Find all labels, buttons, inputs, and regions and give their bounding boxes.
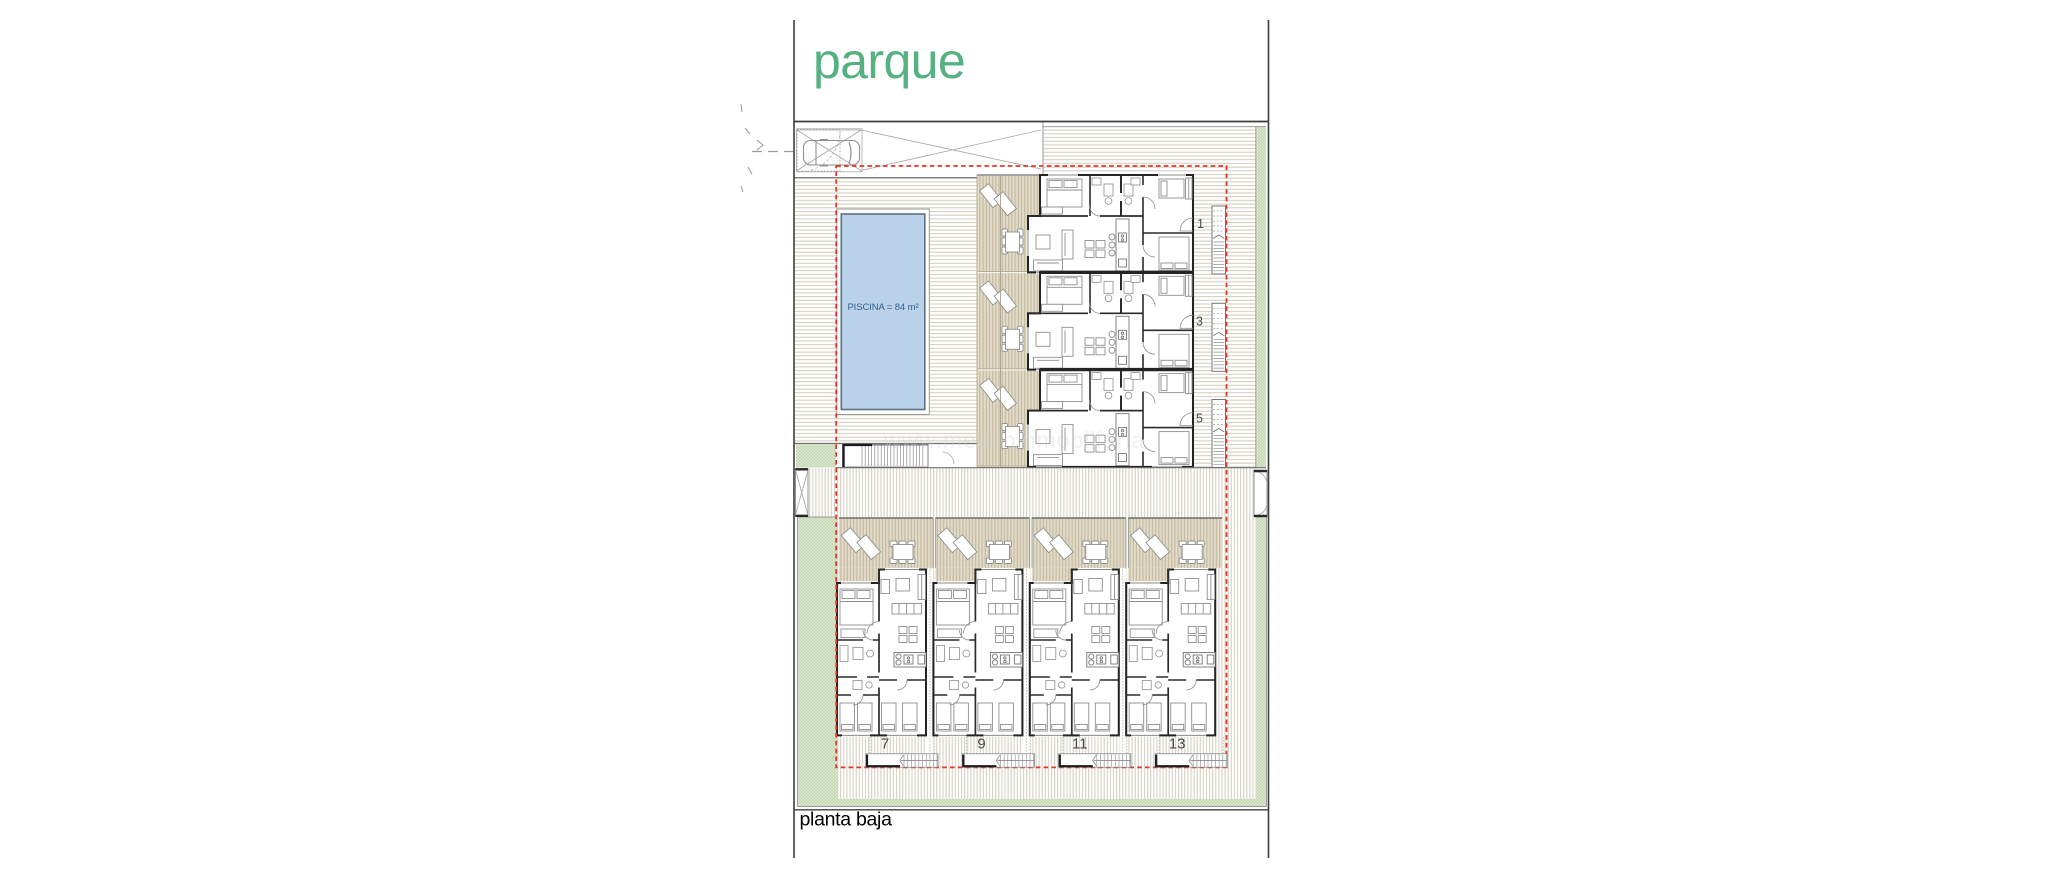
svg-text:5: 5 xyxy=(1196,412,1203,426)
svg-text:parque: parque xyxy=(813,33,965,89)
svg-text:www.medlininmobiliaria: www.medlininmobiliaria xyxy=(883,427,1145,453)
svg-text:3: 3 xyxy=(1196,314,1203,328)
svg-text:7: 7 xyxy=(881,736,889,753)
svg-text:11: 11 xyxy=(1072,736,1088,753)
svg-text:9: 9 xyxy=(977,736,985,753)
svg-text:planta baja: planta baja xyxy=(800,809,893,831)
svg-text:PISCINA = 84 m²: PISCINA = 84 m² xyxy=(847,302,918,313)
svg-text:13: 13 xyxy=(1169,736,1186,753)
svg-text:1: 1 xyxy=(1197,217,1204,231)
